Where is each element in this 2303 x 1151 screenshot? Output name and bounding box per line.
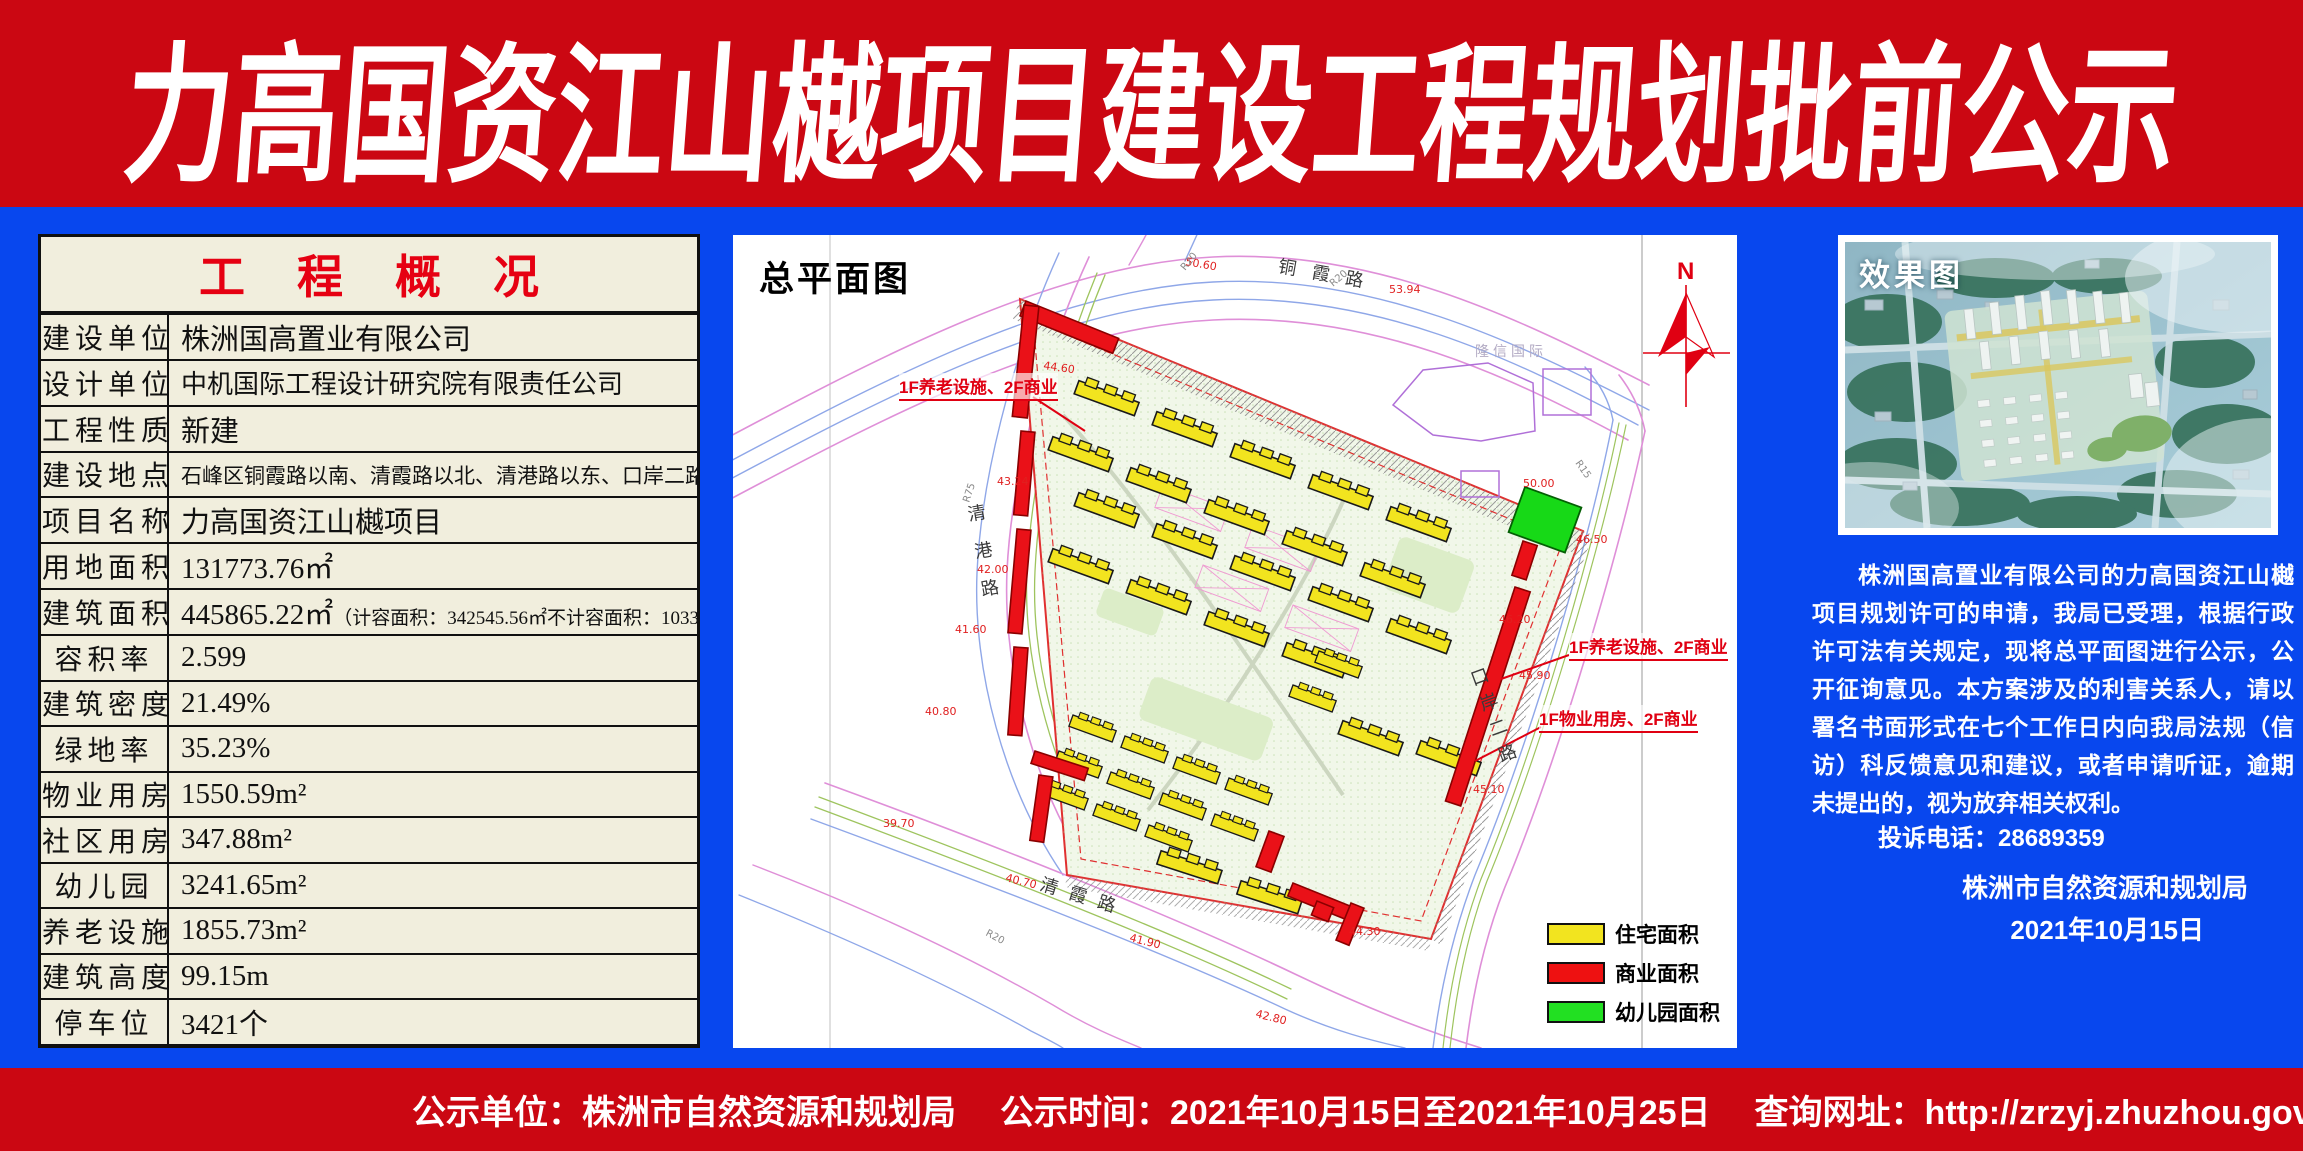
- svg-text:42.80: 42.80: [1254, 1007, 1288, 1027]
- row-label: 社区用房: [41, 817, 168, 863]
- project-overview-panel: 工程概况 建设单位株洲国高置业有限公司 设计单位中机国际工程设计研究院有限责任公…: [38, 234, 700, 1048]
- row-label: 养老设施: [41, 908, 168, 954]
- row-label: 工程性质: [41, 406, 168, 452]
- row-label: 建设单位: [41, 314, 168, 360]
- header-banner: 力高国资江山樾项目建设工程规划批前公示: [0, 0, 2303, 207]
- svg-text:46.20: 46.20: [1499, 613, 1531, 626]
- table-row: 建设地点石峰区铜霞路以南、清霞路以北、清港路以东、口岸二路以西: [41, 452, 697, 498]
- row-value: 131773.76㎡: [181, 553, 333, 585]
- commercial-swatch: [1547, 962, 1605, 984]
- table-row: 用地面积131773.76㎡: [41, 543, 697, 589]
- legend: 住宅面积 商业面积 幼儿园面积: [1547, 919, 1720, 1027]
- table-row: 养老设施1855.73m²: [41, 908, 697, 954]
- aerial-rendering-image: 效果图: [1845, 242, 2271, 528]
- table-row: 容积率2.599: [41, 635, 697, 681]
- row-value: 1550.59m²: [181, 778, 307, 810]
- svg-text:43.24: 43.24: [997, 475, 1029, 488]
- table-row: 绿地率35.23%: [41, 726, 697, 772]
- svg-text:46.50: 46.50: [1576, 533, 1608, 546]
- row-value: 株洲国高置业有限公司: [181, 324, 471, 356]
- svg-text:40.80: 40.80: [925, 705, 957, 718]
- notice-poster: 力高国资江山樾项目建设工程规划批前公示 工程概况 建设单位株洲国高置业有限公司 …: [0, 0, 2303, 1151]
- table-row: 设计单位中机国际工程设计研究院有限责任公司: [41, 360, 697, 406]
- row-value: 445865.22㎡: [181, 599, 333, 631]
- svg-text:R20: R20: [984, 928, 1007, 947]
- row-value: 新建: [181, 416, 239, 448]
- row-value: 3241.65m²: [181, 869, 307, 901]
- rendering-panel: 效果图: [1838, 235, 2278, 535]
- svg-text:40.70: 40.70: [1004, 871, 1038, 891]
- row-label: 用地面积: [41, 543, 168, 589]
- row-value: 347.88m²: [181, 823, 292, 855]
- footer-banner: 公示单位：株洲市自然资源和规划局 公示时间：2021年10月15日至2021年1…: [0, 1068, 2303, 1151]
- row-label: 容积率: [41, 635, 168, 681]
- annotation-elder-commercial-west: 1F养老设施、2F商业: [899, 373, 1058, 401]
- row-label: 停车位: [41, 999, 168, 1045]
- existing-building-label: 隆信国际: [1475, 341, 1547, 361]
- rendering-title: 效果图: [1859, 250, 1964, 295]
- notice-body: 株洲国高置业有限公司的力高国资江山樾项目规划许可的申请，我局已受理，根据行政许可…: [1812, 556, 2294, 822]
- svg-text:39.70: 39.70: [883, 817, 915, 830]
- row-value: 石峰区铜霞路以南、清霞路以北、清港路以东、口岸二路以西: [181, 464, 697, 488]
- north-arrow-icon: N: [1643, 258, 1730, 407]
- kindergarten-swatch: [1547, 1001, 1605, 1023]
- row-label: 建设地点: [41, 452, 168, 498]
- row-label: 项目名称: [41, 497, 168, 543]
- svg-text:R15: R15: [1573, 458, 1593, 480]
- table-row: 幼儿园3241.65m²: [41, 863, 697, 909]
- row-value: 2.599: [181, 641, 246, 673]
- overview-title: 工程概况: [41, 237, 697, 313]
- site-plan-title: 总平面图: [759, 251, 911, 302]
- svg-text:45.90: 45.90: [1519, 669, 1551, 682]
- row-value: 35.23%: [181, 732, 270, 764]
- legend-item-commercial: 商业面积: [1547, 958, 1720, 988]
- site-plan-panel: 50.60 53.94 50.00 46.50 46.20 45.90 45.1…: [733, 235, 1737, 1048]
- row-note: （计容面积：342545.56㎡不计容面积：103319.66㎡）: [333, 608, 697, 629]
- row-label: 物业用房: [41, 772, 168, 818]
- legend-label: 住宅面积: [1615, 919, 1699, 949]
- footer-unit: 公示单位：株洲市自然资源和规划局: [412, 1085, 956, 1134]
- row-value: 力高国资江山樾项目: [181, 507, 442, 539]
- row-label: 设计单位: [41, 360, 168, 406]
- row-label: 幼儿园: [41, 863, 168, 909]
- row-label: 建筑面积: [41, 589, 168, 635]
- legend-label: 幼儿园面积: [1615, 997, 1720, 1027]
- row-value: 1855.73m²: [181, 914, 307, 946]
- table-row: 物业用房1550.59m²: [41, 772, 697, 818]
- svg-text:50.00: 50.00: [1523, 477, 1555, 490]
- table-row: 项目名称力高国资江山樾项目: [41, 497, 697, 543]
- issuing-agency: 株洲市自然资源和规划局: [1812, 868, 2294, 905]
- svg-text:41.60: 41.60: [955, 623, 987, 636]
- table-row: 建设单位株洲国高置业有限公司: [41, 314, 697, 360]
- legend-item-residential: 住宅面积: [1547, 919, 1720, 949]
- table-row: 建筑高度99.15m: [41, 954, 697, 1000]
- overview-table: 建设单位株洲国高置业有限公司 设计单位中机国际工程设计研究院有限责任公司 工程性…: [41, 313, 697, 1046]
- legend-label: 商业面积: [1615, 958, 1699, 988]
- row-label: 建筑密度: [41, 681, 168, 727]
- notice-date: 2021年10月15日: [1812, 910, 2294, 947]
- svg-text:44.30: 44.30: [1349, 925, 1381, 938]
- footer-time: 公示时间：2021年10月15日至2021年10月25日: [1000, 1085, 1711, 1134]
- svg-text:45.10: 45.10: [1473, 783, 1505, 796]
- svg-text:R75: R75: [961, 482, 978, 504]
- annotation-property-commercial: 1F物业用房、2F商业: [1539, 705, 1698, 733]
- table-row: 停车位3421个: [41, 999, 697, 1045]
- row-label: 建筑高度: [41, 954, 168, 1000]
- row-value: 99.15m: [181, 960, 269, 992]
- complaint-phone: 投诉电话：28689359: [1878, 818, 2105, 853]
- legend-item-kindergarten: 幼儿园面积: [1547, 997, 1720, 1027]
- table-row: 社区用房347.88m²: [41, 817, 697, 863]
- page-title: 力高国资江山樾项目建设工程规划批前公示: [117, 0, 2185, 212]
- row-value: 中机国际工程设计研究院有限责任公司: [181, 370, 623, 399]
- svg-text:N: N: [1677, 258, 1694, 285]
- svg-text:53.94: 53.94: [1389, 283, 1421, 296]
- table-row: 建筑面积445865.22㎡（计容面积：342545.56㎡不计容面积：1033…: [41, 589, 697, 635]
- row-value: 21.49%: [181, 687, 270, 719]
- row-label: 绿地率: [41, 726, 168, 772]
- footer-url: 查询网址：http://zrzyj.zhuzhou.gov.cn: [1755, 1085, 2303, 1134]
- table-row: 建筑密度21.49%: [41, 681, 697, 727]
- table-row: 工程性质新建: [41, 406, 697, 452]
- residential-swatch: [1547, 923, 1605, 945]
- annotation-elder-commercial-east: 1F养老设施、2F商业: [1569, 633, 1728, 661]
- row-value: 3421个: [181, 1009, 268, 1041]
